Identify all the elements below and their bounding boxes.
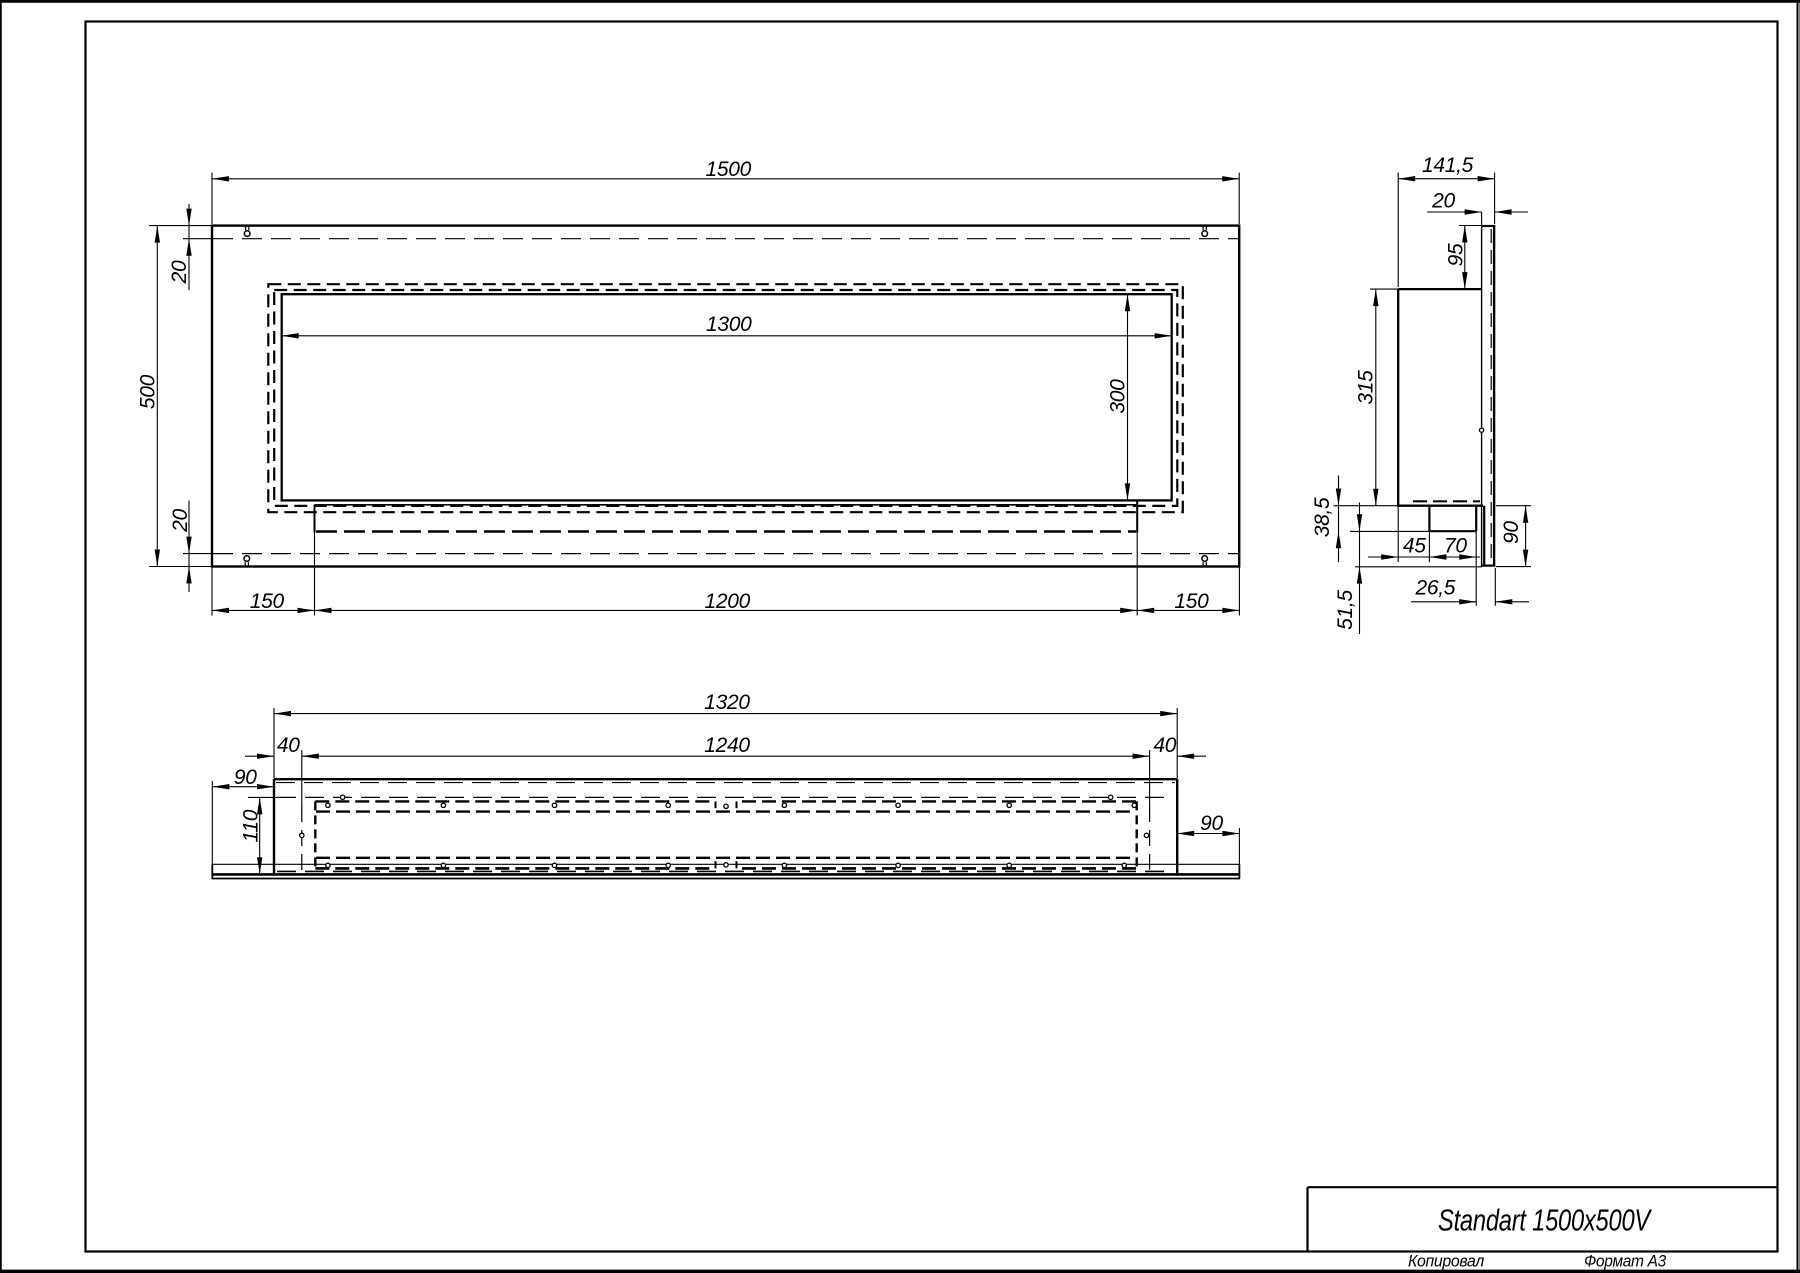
- svg-text:1300: 1300: [706, 313, 752, 336]
- svg-text:90: 90: [1500, 521, 1523, 544]
- svg-text:26,5: 26,5: [1414, 577, 1455, 600]
- svg-text:141,5: 141,5: [1422, 154, 1474, 177]
- svg-text:1500: 1500: [706, 158, 752, 181]
- svg-text:1200: 1200: [705, 590, 751, 613]
- svg-text:38,5: 38,5: [1311, 497, 1334, 537]
- svg-text:Копировал: Копировал: [1408, 1253, 1484, 1271]
- svg-text:90: 90: [234, 766, 257, 789]
- svg-text:20: 20: [1431, 190, 1455, 213]
- svg-text:40: 40: [277, 734, 300, 757]
- svg-text:90: 90: [1200, 812, 1223, 835]
- svg-text:Standart 1500x500V: Standart 1500x500V: [1438, 1203, 1653, 1238]
- svg-text:70: 70: [1444, 535, 1467, 558]
- svg-text:150: 150: [250, 590, 285, 613]
- svg-text:150: 150: [1174, 590, 1209, 613]
- svg-text:Формат А3: Формат А3: [1584, 1253, 1667, 1271]
- svg-text:20: 20: [169, 509, 192, 533]
- svg-text:20: 20: [168, 260, 191, 284]
- svg-text:110: 110: [240, 809, 263, 842]
- svg-text:45: 45: [1403, 535, 1426, 558]
- svg-text:95: 95: [1445, 243, 1468, 266]
- svg-text:51,5: 51,5: [1334, 590, 1357, 630]
- svg-text:1240: 1240: [704, 734, 750, 757]
- svg-text:500: 500: [137, 374, 160, 409]
- svg-text:40: 40: [1153, 734, 1176, 757]
- svg-text:1320: 1320: [704, 691, 750, 714]
- svg-text:300: 300: [1107, 379, 1130, 414]
- svg-text:315: 315: [1354, 370, 1377, 405]
